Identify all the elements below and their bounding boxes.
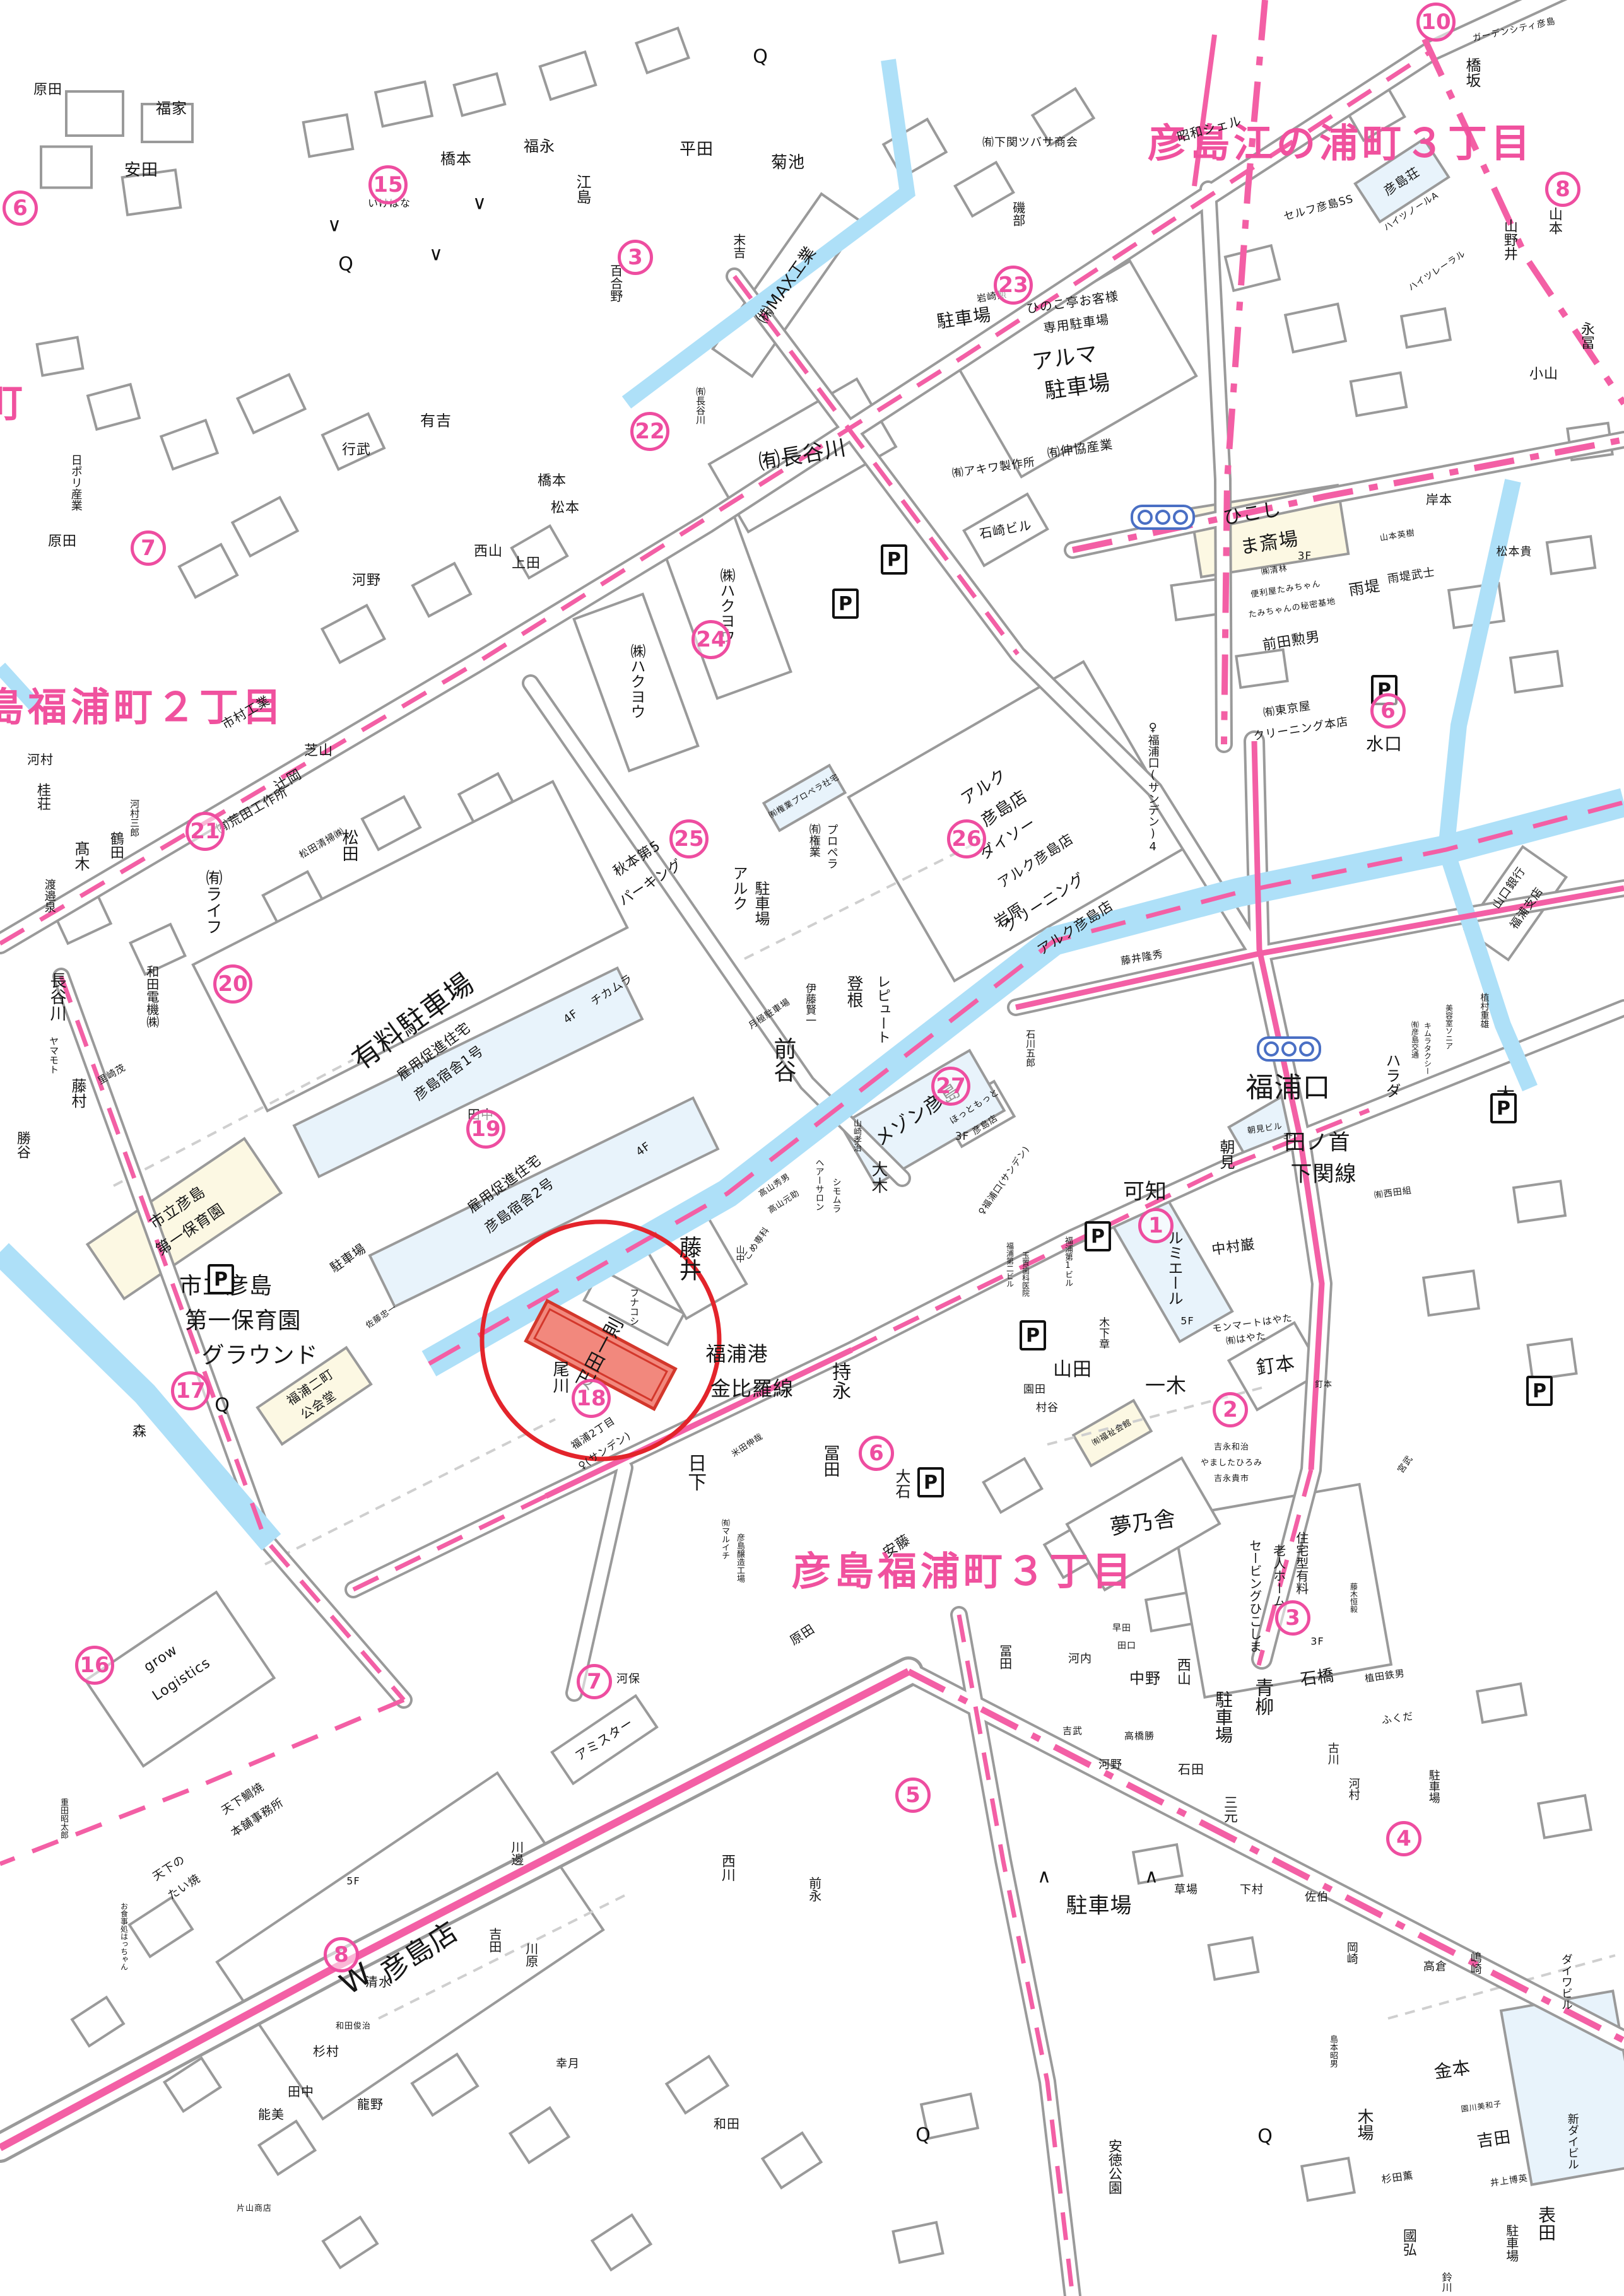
map-label: 原田 [33, 83, 62, 98]
map-label: 吉武 [1062, 1726, 1083, 1736]
map-label: 渡邉泉 [43, 879, 55, 913]
house-footprint [1285, 304, 1346, 352]
map-label: 植村重雄 [1479, 993, 1488, 1028]
house-footprint [454, 74, 505, 115]
map-label: 大木 [869, 1161, 887, 1193]
map-label: グラウンド [201, 1344, 318, 1369]
parking-icon: P [1526, 1376, 1553, 1406]
map-label: 西山 [1175, 1658, 1190, 1685]
house-footprint [1510, 652, 1562, 693]
map-label: 高橋勝 [1124, 1731, 1155, 1741]
house-footprint [323, 2217, 377, 2268]
tree-icon: Q [753, 46, 768, 68]
map-label: 木下章 [1097, 1317, 1109, 1349]
map-label: 原田 [48, 534, 77, 549]
map-label: やましたひろみ [1201, 1459, 1262, 1468]
house-footprint [238, 375, 305, 433]
map-label: 藤木恒毅 [1350, 1583, 1358, 1613]
map-label: 河保 [616, 1673, 640, 1685]
map-label: お食事処はっちゃん [120, 1902, 128, 1971]
buildings-layer [37, 28, 1624, 2270]
map-label: 髙木 [72, 841, 88, 871]
district-number-7: 7 [577, 1664, 612, 1699]
district-number-6: 6 [3, 190, 38, 226]
map-label: 彦島福浦町３丁目 [792, 1551, 1135, 1593]
map-label: 日下 [685, 1453, 705, 1491]
map-label: キムラタクシー [1423, 1022, 1432, 1075]
map-label: 3F [955, 1131, 970, 1142]
map-label: 河村三郎 [129, 799, 139, 837]
map-label: 吉永和治 [1214, 1443, 1249, 1452]
map-label: 一木 [1145, 1375, 1187, 1397]
map-label: 川邊 [509, 1841, 523, 1866]
house-footprint [179, 544, 237, 597]
map-label: 釘本 [1315, 1381, 1333, 1390]
map-label: 吉永貴市 [1214, 1475, 1249, 1484]
map-label: 岡崎 [1345, 1942, 1357, 1964]
map-label: 老人ホーム [1271, 1544, 1285, 1607]
map-label: 片山商店 [237, 2205, 272, 2213]
map-label: 上田 [512, 556, 541, 571]
map-label: 下関線 [1291, 1163, 1357, 1186]
map-label: 松田 [340, 829, 358, 862]
district-number-22: 22 [630, 412, 669, 451]
map-label: 町 [0, 383, 26, 425]
map-label: 駐車場 [752, 881, 768, 926]
district-number-3: 3 [618, 240, 653, 275]
tree-icon: Q [915, 2124, 931, 2147]
map-base-graphics [0, 0, 1624, 2296]
district-number-26: 26 [947, 819, 986, 858]
map-label: 有吉 [420, 413, 452, 430]
map-label: ダイワビル [1560, 1953, 1572, 2010]
traffic-signal-icon [1131, 505, 1195, 530]
map-label: ㈲ライフ [204, 869, 221, 935]
house-footprint [375, 82, 432, 126]
house-footprint [88, 384, 139, 429]
map-label: 勝谷 [15, 1131, 30, 1159]
map-label: 橋坂 [1463, 57, 1480, 88]
terrain-mark: ∨ [429, 243, 443, 266]
map-label: 佐伯 [1305, 1891, 1329, 1903]
house-footprint [1423, 1271, 1479, 1316]
district-number-10: 10 [1416, 3, 1456, 42]
house-footprint [37, 337, 83, 376]
house-footprint [1547, 536, 1595, 573]
district-number-6: 6 [859, 1436, 894, 1471]
house-footprint [893, 2222, 943, 2262]
district-number-3: 3 [1275, 1600, 1310, 1636]
map-label: 杉村 [313, 2045, 339, 2059]
map-label: 早田 [1112, 1624, 1131, 1633]
map-label: 福浦港 [705, 1344, 768, 1366]
map-label: 石川五郎 [1025, 1029, 1035, 1067]
map-label: 美容室ソニア [1445, 1004, 1453, 1050]
house-footprint [1477, 1684, 1526, 1722]
map-label: 新ダイビル [1566, 2113, 1578, 2170]
map-label: 冨田 [997, 1644, 1011, 1670]
district-number-1: 1 [1138, 1208, 1174, 1243]
house-footprint [161, 420, 217, 469]
map-label: 福浦第二ビル [1006, 1242, 1014, 1287]
map-label: ㈱ハクヨウ [628, 643, 644, 719]
map-label: ㈲彦島交通 [1411, 1021, 1419, 1058]
map-label: 鶴田 [108, 831, 123, 859]
parking-icon: P [1020, 1320, 1046, 1350]
map-label: 長谷川 [48, 972, 66, 1021]
map-label: 水口 [1366, 735, 1403, 754]
house-footprint [1225, 245, 1280, 291]
house-footprint [763, 2133, 821, 2188]
terrain-mark: ∧ [1037, 1866, 1051, 1888]
map-label: 駐車場 [1427, 1769, 1439, 1803]
map-label: ㈲下関ツバサ商会 [982, 136, 1078, 148]
terrain-mark: ∨ [473, 192, 486, 214]
house-footprint [510, 2108, 569, 2163]
house-footprint [259, 2121, 315, 2174]
map-label: 山野井 [1502, 219, 1517, 261]
map-label: 住宅型有料 [1294, 1532, 1308, 1595]
map-label: 福浦口 [1246, 1073, 1331, 1103]
map-label: 前谷 [770, 1037, 795, 1082]
parking-icon: P [1490, 1093, 1517, 1123]
map-label: ♀福浦口(サンデン)4 [1146, 721, 1158, 853]
map-label: 下村 [1240, 1883, 1264, 1895]
district-number-16: 16 [75, 1646, 114, 1685]
district-number-17: 17 [171, 1371, 210, 1410]
map-label: 駐車場 [1066, 1895, 1133, 1918]
map-label: 伊藤賢一 [804, 983, 815, 1026]
map-label: 朝見 [1217, 1139, 1233, 1169]
house-footprint [41, 147, 91, 188]
map-label: 冨田 [821, 1444, 839, 1477]
map-label: 山崎孝治 [852, 1119, 861, 1152]
terrain-mark: ∧ [1144, 1866, 1158, 1888]
house-footprint [303, 115, 353, 156]
map-label: 岸本 [1426, 493, 1452, 507]
map-label: 彦島醸造工場 [735, 1533, 744, 1583]
map-label: 藤村 [69, 1078, 85, 1108]
map-label: 西山 [474, 544, 503, 559]
map-label: 草場 [1174, 1883, 1198, 1895]
map-label: 村谷 [1036, 1402, 1059, 1414]
district-number-21: 21 [185, 812, 225, 851]
house-footprint [1514, 1181, 1565, 1222]
map-label: 幸月 [556, 2058, 580, 2070]
map-label: 尾川 [551, 1361, 568, 1393]
map-label: 島本昭男 [1328, 2035, 1337, 2068]
house-footprint [1538, 1795, 1591, 1837]
map-label: 龍野 [357, 2098, 384, 2112]
house-footprint [322, 414, 384, 469]
map-label: ㈲権業 [808, 823, 820, 857]
map-label: 桂荘 [35, 783, 50, 811]
map-label: 3F [1310, 1636, 1324, 1646]
map-label: 青柳 [1252, 1678, 1272, 1716]
map-label: 和田俊治 [336, 2022, 371, 2031]
map-label: 川原 [524, 1942, 538, 1967]
map-label: 日ポリ産業 [69, 454, 81, 511]
map-label: 能美 [258, 2108, 285, 2122]
district-number-4: 4 [1386, 1821, 1421, 1856]
tree-icon: Q [215, 1395, 230, 1417]
map-label: ルミエール [1165, 1230, 1182, 1306]
house-footprint [955, 162, 1013, 216]
district-number-20: 20 [213, 964, 252, 1004]
map-label: 菊池 [771, 154, 805, 172]
map-label: 駐車場 [1504, 2224, 1518, 2262]
map-label: 持永 [829, 1362, 849, 1400]
map-label: 田ノ首 [1285, 1132, 1351, 1155]
map-label: 福永 [524, 139, 555, 155]
map-label: 永冨 [1579, 322, 1594, 349]
map-label: 第一保育園 [184, 1309, 301, 1334]
map-label: 石田 [1178, 1763, 1204, 1777]
district-number-18: 18 [572, 1379, 611, 1418]
house-footprint [232, 498, 297, 556]
parking-icon: P [1085, 1221, 1111, 1251]
district-number-2: 2 [1213, 1392, 1248, 1427]
map-label: シモムラ [831, 1178, 840, 1213]
map-label: 吉田 [487, 1928, 501, 1953]
house-footprint [413, 563, 471, 616]
map-label: 三元 [1221, 1795, 1237, 1823]
house-footprint [322, 606, 385, 663]
map-label: 河野 [352, 573, 381, 589]
map-label: フナコシ [629, 1288, 639, 1326]
map-label: ハラダ [1383, 1053, 1399, 1098]
house-footprint [592, 2215, 651, 2270]
parking-icon: P [881, 544, 907, 575]
house-footprint [666, 2056, 727, 2113]
house-footprint [1302, 2158, 1354, 2200]
map-label: 5F [346, 1875, 360, 1886]
district-number-23: 23 [994, 266, 1033, 305]
house-footprint [66, 91, 123, 136]
map-label: アルク [730, 865, 746, 911]
district-number-19: 19 [466, 1110, 505, 1149]
map-label: 安田 [124, 161, 158, 179]
terrain-mark: ∨ [327, 214, 341, 237]
map-label: 福家 [156, 101, 187, 117]
parking-icon: P [208, 1264, 234, 1294]
house-footprint [412, 2054, 478, 2116]
map-label: 表田 [1536, 2206, 1555, 2241]
map-stage: 彦島江の浦町３丁目彦島福浦町２丁目彦島福浦町３丁目町原田福家安田平田菊池橋本福永… [0, 0, 1624, 2296]
map-label: 安徳公園 [1106, 2139, 1121, 2194]
map-label: 松本貴 [1497, 546, 1533, 558]
map-label: 高倉 [1423, 1960, 1447, 1972]
house-footprint [637, 28, 689, 73]
map-label: 百合野 [608, 264, 622, 302]
district-number-8: 8 [1545, 172, 1580, 207]
map-label: 鈴川 [1440, 2272, 1451, 2292]
house-footprint [1528, 1339, 1577, 1379]
house-footprint [1351, 373, 1406, 416]
map-label: 田中 [288, 2085, 314, 2099]
district-number-8: 8 [324, 1937, 359, 1972]
map-label: 木場 [1355, 2108, 1373, 2141]
map-label: ㈲マルイチ [720, 1519, 729, 1560]
house-footprint [362, 797, 420, 850]
map-label: 福浦第1ビル [1063, 1236, 1072, 1287]
map-label: 國弘 [1401, 2229, 1416, 2256]
map-label: 西川 [719, 1854, 734, 1882]
map-label: 河村 [27, 753, 54, 767]
house-footprint [72, 1997, 124, 2046]
district-number-24: 24 [691, 620, 731, 659]
house-footprint [984, 1458, 1042, 1512]
map-label: 玉置歯科医院 [1021, 1251, 1030, 1297]
map-label: 可知 [1123, 1181, 1167, 1204]
map-label: 橋本 [440, 151, 472, 168]
map-label: 古川 [1326, 1742, 1338, 1765]
map-label: 平田 [680, 141, 714, 158]
district-number-15: 15 [368, 165, 408, 204]
map-label: 森 [130, 1424, 145, 1438]
map-label: 金比羅線 [710, 1378, 794, 1400]
map-label: 山田 [1053, 1360, 1092, 1380]
house-footprint [540, 52, 596, 99]
map-label: 芝山 [304, 744, 333, 759]
tree-icon: Q [338, 254, 353, 276]
map-label: 末吉 [731, 233, 745, 259]
district-number-25: 25 [669, 819, 709, 858]
house-footprint [129, 1897, 192, 1957]
map-label: 橋本 [538, 474, 567, 489]
district-number-7: 7 [131, 530, 166, 566]
map-label: 和田 [714, 2117, 740, 2131]
map-label: ヘアーサロン [814, 1158, 823, 1211]
tree-icon: Q [1257, 2126, 1273, 2148]
map-label: 田口 [1117, 1641, 1136, 1651]
map-label: 大石 [893, 1468, 909, 1499]
map-label: 前永 [807, 1877, 821, 1902]
house-footprint [1236, 650, 1287, 688]
map-label: 磯部 [1011, 201, 1025, 226]
map-label: 山本 [1546, 207, 1562, 235]
map-label: ㈲長谷川 [695, 387, 705, 425]
map-label: 中野 [1129, 1671, 1161, 1687]
map-label: 重田昭太郎 [59, 1798, 68, 1839]
house-footprint [1401, 308, 1450, 347]
map-label: 駐車場 [1213, 1690, 1232, 1743]
map-label: プロペラ [825, 824, 837, 869]
map-label: ヤマモト [49, 1036, 59, 1074]
map-label: 松本 [551, 501, 580, 516]
district-number-27: 27 [931, 1067, 970, 1106]
map-label: 嶋崎 [1469, 1952, 1481, 1974]
parking-icon: P [832, 589, 859, 619]
map-label: 河内 [1068, 1653, 1092, 1665]
traffic-signal-icon [1257, 1036, 1321, 1062]
map-label: 河野 [1098, 1759, 1122, 1771]
map-label: 登根 [845, 975, 862, 1008]
parking-icon: P [917, 1467, 944, 1497]
map-label: 3F [1298, 551, 1312, 562]
map-label: 江島 [574, 174, 590, 204]
district-number-6: 6 [1370, 693, 1406, 729]
map-label: 園田 [1023, 1384, 1046, 1395]
map-label: 5F [1180, 1315, 1194, 1326]
district-number-5: 5 [895, 1778, 931, 1813]
house-footprint [1209, 1938, 1258, 1979]
map-label: 藤井 [676, 1236, 700, 1281]
map-label: レピュート [874, 975, 890, 1044]
map-label: 小山 [1529, 367, 1558, 382]
map-label: 和田電機㈱ [144, 965, 158, 1028]
map-label: 河村 [1347, 1778, 1359, 1800]
map-label: セービングひこしま [1247, 1539, 1261, 1653]
map-label: 行武 [342, 443, 371, 458]
